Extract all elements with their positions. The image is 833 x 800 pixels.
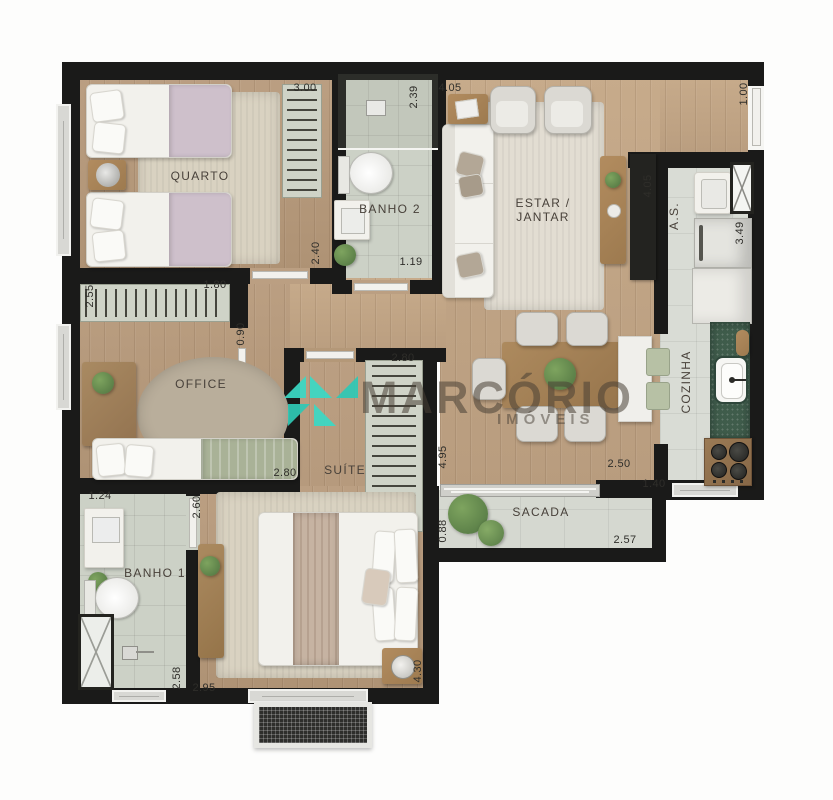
room-label-quarto: QUARTO bbox=[171, 169, 230, 183]
dimension-label-4: 4.05 bbox=[642, 174, 654, 197]
room-label-banho2: BANHO 2 bbox=[359, 202, 421, 216]
dimension-label-16: 0.88 bbox=[437, 519, 449, 542]
room-label-office: OFFICE bbox=[175, 377, 227, 391]
wall-estar-cozinha-upper bbox=[654, 168, 668, 334]
island-stool-1 bbox=[646, 348, 670, 376]
sideboard-decor bbox=[607, 204, 621, 218]
dimension-label-22: 4.30 bbox=[412, 659, 424, 682]
dimension-label-5: 3.49 bbox=[734, 221, 746, 244]
wall-corridor-stub bbox=[230, 268, 248, 328]
as-cabinet bbox=[692, 268, 752, 324]
banho1-fixture-arm bbox=[136, 651, 154, 653]
banho2-plant bbox=[334, 244, 356, 266]
dimension-label-20: 2.58 bbox=[171, 666, 183, 689]
ac-condenser-platform bbox=[254, 702, 372, 748]
sacada-plant-small bbox=[478, 520, 504, 546]
cozinha-stove bbox=[704, 438, 752, 486]
banho1-shower-fixture bbox=[122, 646, 138, 660]
estar-coffee-table bbox=[448, 94, 488, 124]
cozinha-sink bbox=[714, 356, 748, 404]
dimension-label-0: 3.00 bbox=[293, 82, 316, 94]
quarto-nightstand bbox=[88, 160, 126, 190]
dimension-label-19: 2.60 bbox=[191, 495, 203, 518]
cozinha-cutting-board bbox=[736, 330, 749, 356]
room-label-banho1: BANHO 1 bbox=[124, 566, 186, 580]
dimension-label-6: 2.40 bbox=[310, 241, 322, 264]
room-label-as: A.S. bbox=[667, 202, 681, 230]
banho1-toilet bbox=[95, 577, 139, 619]
dimension-label-2: 4.05 bbox=[438, 82, 461, 94]
dimension-label-9: 1.80 bbox=[203, 279, 226, 291]
banho1-shower bbox=[78, 614, 114, 690]
island-stool-2 bbox=[646, 382, 670, 410]
quarto-wardrobe bbox=[282, 84, 322, 198]
apartment-floorplan: MARCÓRIO IMÓVEIS QUARTOBANHO 2ESTAR /JAN… bbox=[0, 0, 833, 800]
dimension-label-14: 2.50 bbox=[607, 458, 630, 470]
estar-sofa bbox=[442, 124, 494, 298]
dimension-label-13: 4.95 bbox=[437, 445, 449, 468]
as-shaft bbox=[730, 162, 754, 214]
entrance-door bbox=[752, 88, 761, 146]
dimension-label-17: 2.57 bbox=[613, 534, 636, 546]
suite-bed bbox=[258, 512, 418, 666]
sacada-rail-bottom bbox=[425, 548, 666, 562]
suite-dresser-plant bbox=[200, 556, 220, 576]
dimension-label-12: 2.80 bbox=[273, 467, 296, 479]
estar-armchair-2 bbox=[544, 86, 592, 134]
dimension-label-1: 2.39 bbox=[408, 85, 420, 108]
quarto-door bbox=[252, 271, 308, 279]
dining-chair-1 bbox=[516, 312, 558, 346]
sideboard-plant bbox=[605, 172, 621, 188]
banho2-door bbox=[354, 283, 408, 291]
watermark-tagline-text: IMÓVEIS bbox=[497, 411, 595, 428]
suite-door bbox=[306, 351, 354, 359]
quarto-window bbox=[56, 104, 71, 256]
floorplan-image: MARCÓRIO IMÓVEIS QUARTOBANHO 2ESTAR /JAN… bbox=[0, 0, 833, 800]
dimension-label-3: 1.00 bbox=[738, 82, 750, 105]
estar-armchair-1 bbox=[490, 86, 536, 134]
office-plant bbox=[92, 372, 114, 394]
room-label-sacada: SACADA bbox=[512, 505, 569, 519]
dimension-label-11: 2.80 bbox=[391, 352, 414, 364]
tv-panel bbox=[630, 154, 656, 280]
banho2-toilet bbox=[349, 152, 393, 194]
office-bed bbox=[92, 438, 298, 480]
dimension-label-8: 2.55 bbox=[84, 284, 96, 307]
dimension-label-15: 1.40 bbox=[642, 478, 665, 490]
dimension-label-10: 0.90 bbox=[235, 322, 247, 345]
wall-suite-right-lower bbox=[423, 560, 439, 704]
dimension-label-21: 2.95 bbox=[192, 682, 215, 694]
as-tanque-sink bbox=[694, 172, 732, 214]
room-label-cozinha: COZINHA bbox=[679, 350, 693, 413]
banho2-shower-head bbox=[366, 100, 386, 116]
room-label-estar: ESTAR /JANTAR bbox=[516, 196, 571, 224]
office-window bbox=[56, 324, 71, 410]
banho1-vanity bbox=[84, 508, 124, 568]
quarto-bed-1 bbox=[86, 84, 232, 158]
room-label-suite: SUÍTE bbox=[324, 463, 366, 477]
dining-chair-2 bbox=[566, 312, 608, 346]
banho2-shower-area bbox=[338, 74, 438, 150]
marcorio-logo-icon bbox=[282, 372, 358, 438]
quarto-bed-2 bbox=[86, 192, 232, 267]
banho1-window bbox=[112, 690, 166, 702]
dimension-label-7: 1.19 bbox=[399, 256, 422, 268]
dimension-label-18: 1.24 bbox=[88, 490, 111, 502]
suite-window bbox=[248, 689, 368, 703]
